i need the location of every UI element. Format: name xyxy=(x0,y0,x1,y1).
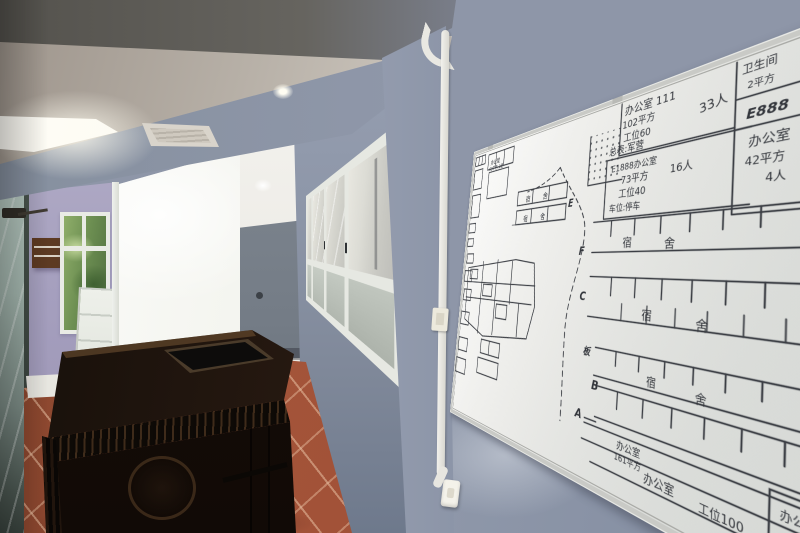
label-office-e888: 办公室 xyxy=(748,122,791,151)
interior-door-edge xyxy=(375,158,378,270)
desk-joint xyxy=(268,421,270,533)
window-latch xyxy=(324,241,325,249)
row-letter-e: E xyxy=(568,198,575,211)
desk-medallion xyxy=(128,456,196,520)
window-pane-upper xyxy=(326,174,344,267)
row-letter-a: A xyxy=(573,406,582,423)
row-letter-b: B xyxy=(591,379,599,395)
label-seats-100: 工位100 xyxy=(698,498,744,533)
window-pane-upper xyxy=(308,198,312,260)
window-pane-frosted xyxy=(313,266,324,309)
label-dorm: 宿 xyxy=(646,372,657,393)
desk-joint xyxy=(250,424,252,533)
desk-stretcher xyxy=(222,462,287,483)
window-pane-upper xyxy=(313,189,324,263)
window-latch xyxy=(345,243,347,254)
label-dorm: 宿 xyxy=(523,213,529,224)
outlet-plate xyxy=(446,488,454,499)
label-people-4: 4人 xyxy=(765,168,788,187)
label-dorm: 舍 xyxy=(694,388,709,412)
label-dorm: 舍 xyxy=(664,234,676,252)
window-pane-frosted xyxy=(326,271,344,327)
label-dorm: 宿 xyxy=(622,235,633,252)
gray-board-knob xyxy=(256,292,263,299)
downlight-glint xyxy=(254,179,272,192)
row-letter-f: F xyxy=(578,246,585,259)
window-pane-frosted xyxy=(308,264,312,298)
row-letter-ban: 板 xyxy=(582,344,591,360)
label-e888: E888 xyxy=(746,98,789,124)
label-dorm: 舍 xyxy=(540,211,546,223)
office-corridor-photo: E F C 板 B A 办公室 111 102平方 工位60 33人 总表:军营… xyxy=(0,0,800,533)
light-switch xyxy=(431,307,449,331)
label-people-16: 16人 xyxy=(669,157,693,177)
power-outlet xyxy=(440,479,460,508)
downlight xyxy=(273,84,293,99)
label-people-33: 33人 xyxy=(699,90,730,118)
row-letter-c: C xyxy=(579,290,586,304)
row-letters: E F C 板 B A xyxy=(553,192,610,429)
label-parking: 车位:停车 xyxy=(609,198,642,216)
switch-rocker xyxy=(436,313,445,326)
